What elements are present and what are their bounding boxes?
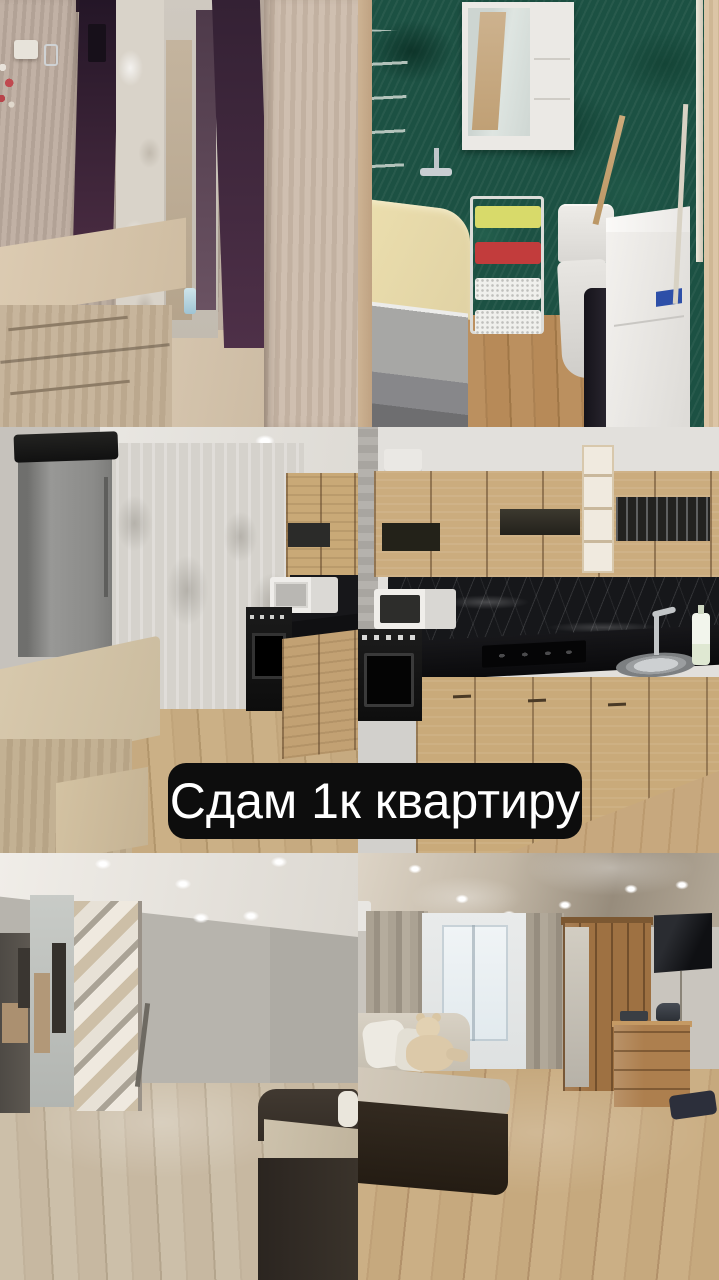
cabinet-shelf-line — [534, 98, 570, 100]
promo-banner: Сдам 1к квартиру — [168, 763, 582, 839]
bathtub-panel — [358, 300, 468, 427]
promo-banner-text: Сдам 1к квартиру — [170, 776, 580, 826]
fridge-handle — [104, 477, 108, 597]
oven-glass — [252, 633, 286, 679]
fridge-top-object — [14, 431, 119, 463]
basket-red — [475, 242, 541, 264]
oven-glass — [364, 653, 414, 707]
oven-knobs — [362, 635, 418, 640]
glass-cabinet-left — [382, 523, 440, 551]
door-frame-left — [358, 0, 372, 427]
cabinet-handle — [608, 703, 626, 707]
tv-cable — [680, 971, 682, 1021]
drape-right — [526, 913, 564, 1071]
dresser-items — [620, 1011, 648, 1021]
sofa-base — [258, 1158, 358, 1280]
cabinet-shelf-line — [534, 58, 570, 60]
ceiling-spotlight — [406, 863, 424, 875]
oven-knobs — [250, 615, 288, 619]
wall-pipe — [696, 0, 703, 262]
bath-faucet — [420, 168, 452, 176]
microwave-door — [274, 582, 308, 608]
wardrobe-mirror-door — [565, 927, 589, 1087]
shoe-bench-drawers — [0, 305, 172, 427]
apartment-story-collage: Сдам 1к квартиру — [0, 0, 719, 1280]
sofa-base — [358, 1101, 508, 1196]
room-right-wall — [270, 909, 358, 1099]
cabinet-handle — [528, 699, 546, 703]
basket-top — [475, 206, 541, 228]
window-frame-bar — [472, 925, 475, 1041]
glass-cabinet — [288, 523, 330, 547]
coat-hook — [44, 44, 58, 66]
right-wardrobe — [264, 0, 358, 427]
ceiling-spotlight — [172, 877, 194, 891]
faucet — [654, 613, 659, 655]
mirror-reflection-wood — [34, 973, 50, 1053]
soap-cap — [698, 605, 704, 614]
ceiling-spotlight — [556, 899, 574, 911]
wall-tv — [654, 913, 712, 973]
ceiling-spotlight — [240, 909, 262, 923]
photo-living-room — [358, 853, 719, 1280]
door-lock — [88, 24, 106, 62]
stool — [56, 767, 148, 853]
cooker-hood — [500, 509, 580, 535]
water-bottle — [184, 288, 196, 314]
hallway-shelf — [2, 1003, 28, 1043]
dish-soap-bottle — [692, 613, 710, 665]
ceiling-spotlight — [268, 855, 290, 869]
sofa-pillow — [338, 1091, 358, 1127]
basket-middle — [475, 278, 541, 300]
basket-bottom — [475, 310, 541, 334]
ceiling-spotlight — [92, 857, 114, 871]
ceiling-spotlight — [622, 883, 640, 895]
patterned-wardrobe — [74, 901, 140, 1111]
cabinet-handle — [453, 695, 471, 699]
ceiling-spotlight — [673, 879, 691, 891]
photo-hallway — [0, 0, 358, 427]
fridge — [18, 457, 112, 657]
bathroom-right-wall — [704, 0, 719, 427]
ceiling-spotlight — [453, 893, 471, 905]
light-switch — [14, 40, 38, 59]
flowers-decor — [0, 55, 18, 117]
photo-bathroom — [358, 0, 719, 427]
glass-cabinet-right — [616, 497, 710, 541]
clothes-iron — [656, 1003, 680, 1021]
hanging-coat — [18, 948, 30, 1008]
lower-cabinets — [282, 630, 358, 759]
open-shelf-niche — [582, 445, 614, 573]
ceiling-spotlight — [190, 911, 212, 925]
photo-empty-room — [0, 853, 358, 1280]
mirror-reflection-coat — [52, 943, 66, 1033]
microwave-door — [380, 595, 420, 623]
